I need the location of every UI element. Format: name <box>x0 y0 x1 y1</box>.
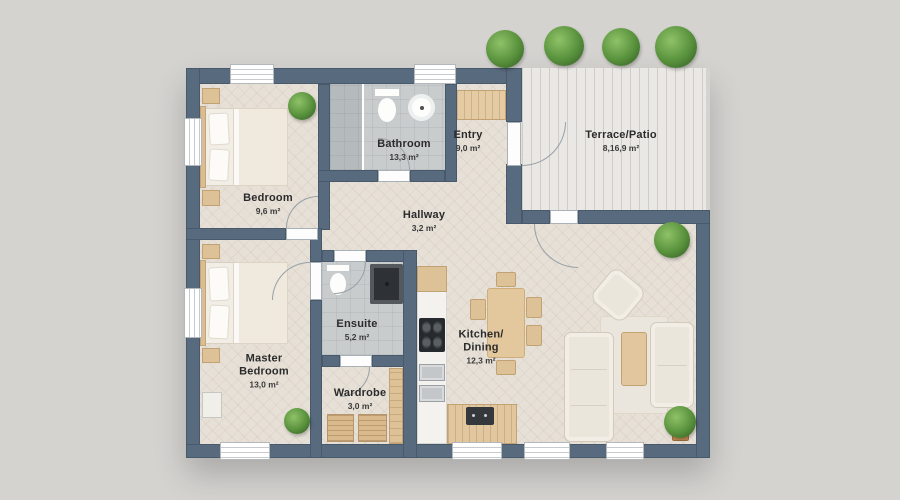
master-nightstand <box>202 244 220 259</box>
room-label-hallway: Hallway 3,2 m² <box>403 209 445 233</box>
plant <box>288 92 316 120</box>
room-label-kitchen-dining: Kitchen/ Dining 12,3 m² <box>459 328 504 365</box>
room-label-ensuite: Ensuite 5,2 m² <box>336 318 377 342</box>
front-door-leaf <box>507 122 521 166</box>
window <box>414 64 456 84</box>
wardrobe-door-leaf <box>340 355 372 367</box>
master-door-leaf <box>310 262 322 300</box>
plant <box>664 406 696 438</box>
burner <box>422 321 431 334</box>
wall-bathroom-bottom-left <box>318 170 378 182</box>
room-label-entry: Entry 9,0 m² <box>453 129 482 153</box>
room-label-bedroom: Bedroom 9,6 m² <box>243 192 293 216</box>
terrace-door-leaf <box>550 210 578 224</box>
window <box>606 442 644 460</box>
kitchen-cabinet <box>417 266 447 292</box>
room-name: Hallway <box>403 209 445 222</box>
room-area: 5,2 m² <box>336 332 377 342</box>
window <box>220 442 270 460</box>
window <box>230 64 274 84</box>
room-area: 13,3 m² <box>377 152 431 162</box>
bed-pillow <box>208 266 230 301</box>
island-cooktop <box>466 407 494 425</box>
shower-drain <box>385 282 389 286</box>
terrace-bush <box>602 28 640 66</box>
room-name: Entry <box>453 129 482 142</box>
room-area: 13,0 m² <box>239 380 289 390</box>
wall-bedroom-bathroom <box>318 84 330 230</box>
wall-bedroom-bottom <box>186 228 286 240</box>
bathroom-shower <box>330 84 364 170</box>
wall-ensuite-top-left <box>322 250 334 262</box>
window <box>184 288 202 338</box>
plant <box>654 222 690 258</box>
living-sofa <box>564 332 614 442</box>
burner <box>422 336 431 349</box>
window <box>524 442 570 460</box>
plant <box>284 408 310 434</box>
window <box>452 442 502 460</box>
room-name: Ensuite <box>336 318 377 331</box>
window <box>184 118 202 166</box>
bed-pillow <box>208 304 230 339</box>
kitchen-island <box>447 404 517 444</box>
ensuite-door-leaf <box>334 250 366 262</box>
bathroom-toilet <box>374 88 400 97</box>
living-sofa <box>650 322 694 408</box>
kitchen-cooktop <box>419 318 445 352</box>
coffee-table <box>621 332 647 386</box>
master-nightstand <box>202 348 220 363</box>
wall-entry-right-upper <box>506 68 522 122</box>
room-label-master-bedroom: Master Bedroom 13,0 m² <box>239 352 289 389</box>
terrace-bush <box>655 26 697 68</box>
room-name: Bathroom <box>377 138 431 151</box>
ensuite-shower <box>370 264 403 304</box>
wall-bathroom-bottom-right <box>410 170 445 182</box>
wardrobe-basket <box>327 414 354 442</box>
bathroom-sink <box>407 93 436 122</box>
sink-faucet <box>420 106 424 110</box>
dining-chair <box>526 297 542 318</box>
bedroom-nightstand <box>202 190 220 206</box>
kitchen-sink <box>419 385 445 402</box>
room-area: 9,6 m² <box>243 206 293 216</box>
room-area: 8,16,9 m² <box>585 143 656 153</box>
floor-plan: Bedroom 9,6 m² Bathroom 13,3 m² Entry 9,… <box>0 0 900 500</box>
room-name: Bedroom <box>243 192 293 205</box>
room-area: 12,3 m² <box>459 356 504 366</box>
bedroom-door-leaf <box>286 228 318 240</box>
dining-chair <box>526 325 542 346</box>
wall-right <box>696 210 710 458</box>
dining-chair <box>496 272 516 287</box>
bedroom-nightstand <box>202 88 220 104</box>
sofa-cushion-line <box>571 405 607 406</box>
wall-terrace-stub <box>522 210 550 224</box>
room-name: Master Bedroom <box>239 352 289 378</box>
entry-console <box>449 90 506 120</box>
sofa-cushion-line <box>657 365 687 366</box>
wall-ensuite-wardrobe-left <box>322 355 340 367</box>
bedroom-bed <box>204 108 288 186</box>
wall-kitchen-left <box>403 250 417 458</box>
wardrobe-basket <box>358 414 387 442</box>
bed-duvet <box>233 262 288 344</box>
wall-entry-right-lower <box>506 164 522 224</box>
burner <box>433 336 442 349</box>
wardrobe-shelf <box>389 368 403 444</box>
room-label-bathroom: Bathroom 13,3 m² <box>377 138 431 162</box>
knob <box>472 414 475 417</box>
bathroom-toilet-bowl <box>377 97 397 123</box>
room-name: Wardrobe <box>334 387 387 400</box>
wall-master-right-lower <box>310 300 322 458</box>
kitchen-counter <box>417 266 447 444</box>
knob <box>484 414 487 417</box>
room-name: Kitchen/ Dining <box>459 328 504 354</box>
room-name: Terrace/Patio <box>585 129 656 142</box>
master-bench <box>202 392 222 418</box>
room-label-terrace: Terrace/Patio 8,16,9 m² <box>585 129 656 153</box>
room-label-wardrobe: Wardrobe 3,0 m² <box>334 387 387 411</box>
room-area: 9,0 m² <box>453 143 482 153</box>
bed-pillow <box>208 148 230 181</box>
master-bed <box>204 262 288 344</box>
wall-terrace-bottom <box>578 210 710 224</box>
bed-pillow <box>208 112 230 145</box>
bathroom-door-leaf <box>378 170 410 182</box>
kitchen-sink <box>419 364 445 381</box>
terrace-bush <box>486 30 524 68</box>
room-area: 3,2 m² <box>403 223 445 233</box>
room-area: 3,0 m² <box>334 401 387 411</box>
bed-duvet <box>233 108 288 186</box>
sofa-cushion-line <box>571 369 607 370</box>
terrace-bush <box>544 26 584 66</box>
dining-chair <box>470 299 486 320</box>
burner <box>433 321 442 334</box>
